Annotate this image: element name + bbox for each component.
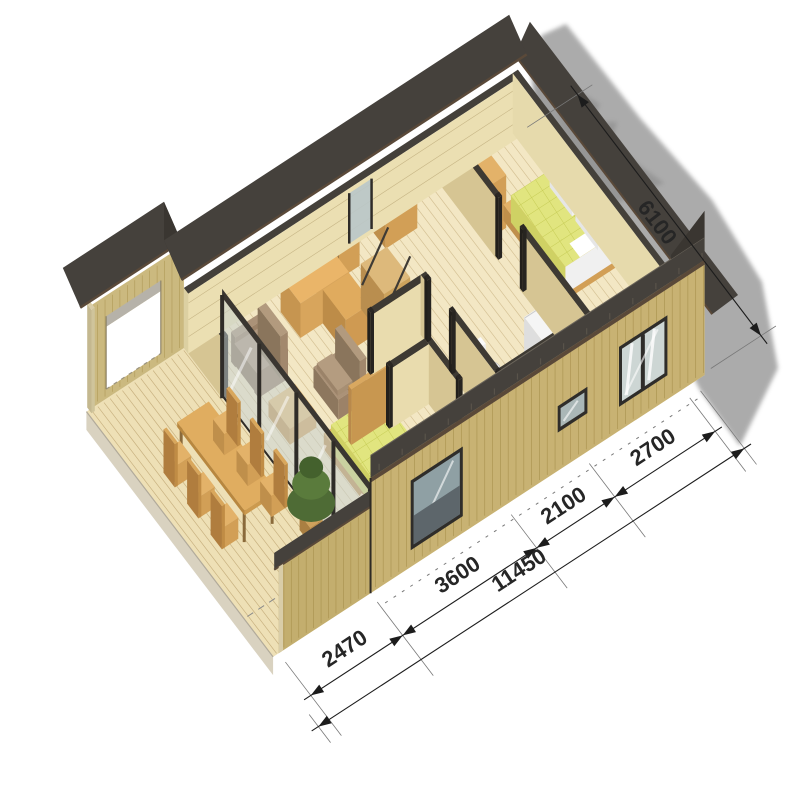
dim-label-total: 11450 [487,543,551,597]
dim-label-segment-3: 2700 [625,423,680,471]
dim-label-segment-2: 2100 [536,481,591,529]
isometric-house-drawing: 2470360021002700114506100 [0,0,800,800]
dim-label-segment-0: 2470 [317,624,372,672]
dim-label-segment-1: 3600 [430,551,485,599]
floor-plan-rendering: 2470360021002700114506100 [0,0,800,800]
